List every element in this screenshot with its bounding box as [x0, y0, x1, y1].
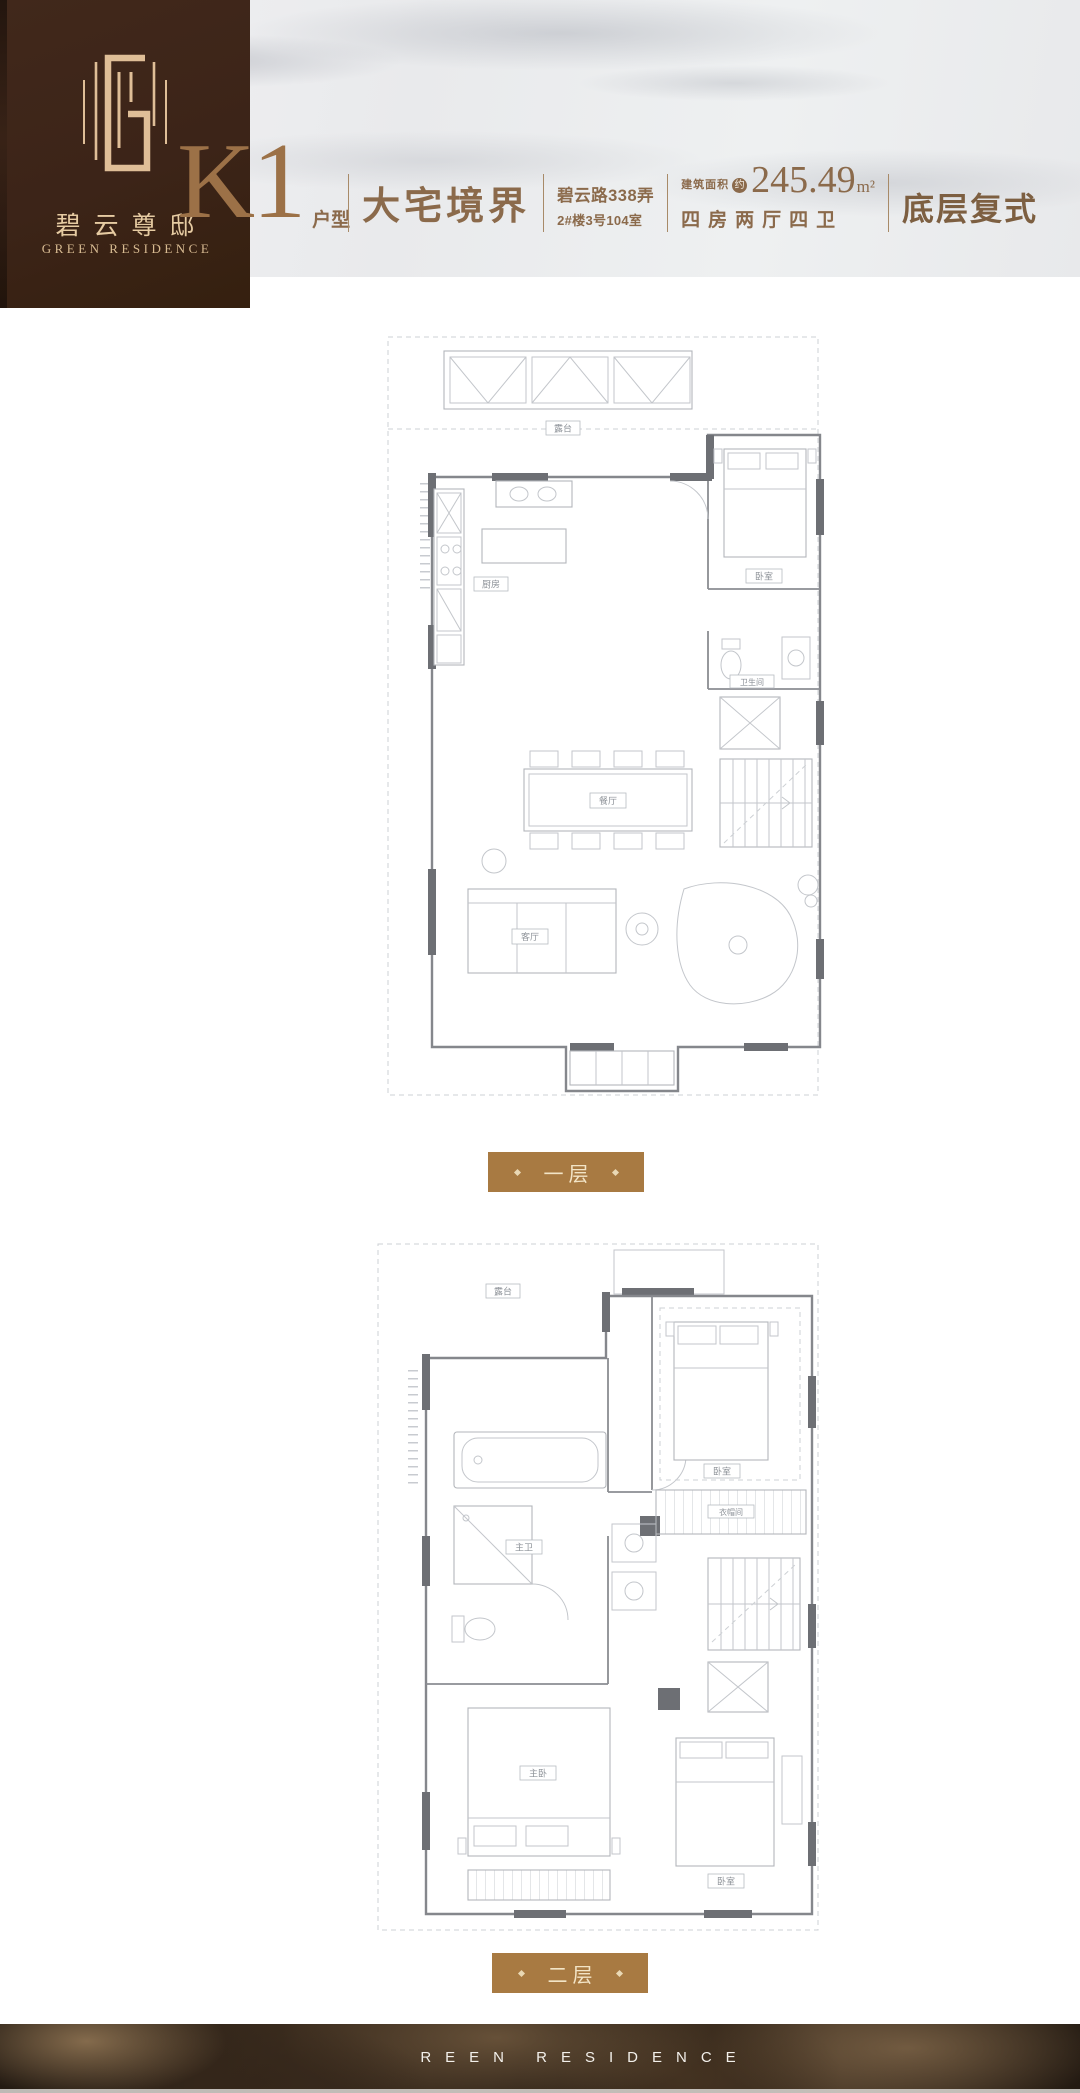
svg-text:卧室: 卧室	[755, 571, 773, 582]
badge-dot	[513, 1168, 520, 1175]
floor-2-plan: 露台	[368, 1240, 828, 1935]
floor-2-badge: 二层	[492, 1953, 648, 1993]
plan2-master-bath: 主卫	[452, 1432, 656, 1642]
svg-text:卧室: 卧室	[713, 1466, 731, 1477]
address-line2: 2#楼3号104室	[557, 210, 654, 229]
brand-monogram-icon	[75, 38, 175, 188]
plan1-dining: 餐厅	[524, 751, 692, 849]
plan2-master-bedroom: 主卧	[458, 1708, 620, 1900]
unit-code: K1	[177, 131, 303, 234]
unit-type-label: 户型	[312, 210, 335, 234]
plan2-closet: 衣帽间	[656, 1490, 806, 1534]
plan1-elevator	[720, 697, 780, 749]
plan1-terrace-windows: 露台	[444, 351, 692, 435]
plan1-stairs	[720, 759, 812, 847]
approx-circle-icon: 约	[732, 178, 747, 193]
tagline: 大宅境界	[362, 175, 530, 234]
floor-1-badge: 一层	[488, 1152, 644, 1192]
svg-text:主卫: 主卫	[515, 1542, 533, 1553]
header-divider	[348, 174, 349, 232]
floor-1-badge-label: 一层	[539, 1158, 594, 1187]
floor-2-badge-label: 二层	[543, 1959, 598, 1988]
area-label: 建筑面积	[681, 176, 729, 197]
svg-text:卧室: 卧室	[717, 1876, 735, 1887]
footer-brand-text: REEN RESIDENCE	[420, 2049, 749, 2066]
svg-text:露台: 露台	[554, 423, 572, 434]
header-divider	[543, 174, 544, 232]
badge-dot	[615, 1969, 622, 1976]
rooms-layout: 四房两厅四卫	[681, 205, 875, 232]
footer-photo-band: REEN RESIDENCE	[0, 2024, 1080, 2093]
plan2-bedroom-bottom: 卧室	[676, 1738, 802, 1888]
svg-text:餐厅: 餐厅	[599, 795, 617, 806]
plan1-entry-steps	[570, 1051, 674, 1085]
svg-text:客厅: 客厅	[521, 931, 539, 942]
address-block: 碧云路338弄 2#楼3号104室	[557, 182, 654, 234]
area-value: 245.49	[751, 163, 856, 197]
area-unit: m²	[857, 178, 875, 197]
floor-1-plan: 露台	[378, 333, 828, 1103]
header-divider	[667, 174, 668, 232]
plan2-interior-walls	[426, 1296, 686, 1684]
plan2-stairs	[708, 1558, 800, 1650]
plan1-bedroom: 卧室	[714, 449, 816, 583]
svg-text:主卧: 主卧	[529, 1768, 547, 1779]
header-title-row: K1 户型 大宅境界 碧云路338弄 2#楼3号104室 建筑面积 约 245.…	[177, 94, 1038, 234]
flyer-page: 碧云尊邸 GREEN RESIDENCE K1 户型 大宅境界 碧云路338弄 …	[0, 0, 1080, 2093]
plan1-kitchen: 厨房	[434, 481, 572, 665]
plan2-bedroom-top: 卧室	[660, 1308, 800, 1480]
svg-text:衣帽间: 衣帽间	[719, 1507, 743, 1517]
plan1-bathroom: 卫生间	[721, 637, 810, 688]
address-line1: 碧云路338弄	[557, 182, 654, 206]
svg-text:卫生间: 卫生间	[740, 677, 764, 687]
brand-name-en: GREEN RESIDENCE	[0, 241, 250, 257]
badge-dot	[517, 1969, 524, 1976]
plan2-balcony: 露台	[486, 1250, 724, 1298]
plan2-elevator	[708, 1662, 768, 1712]
area-block: 建筑面积 约 245.49 m² 四房两厅四卫	[681, 163, 875, 234]
badge-dot	[611, 1168, 618, 1175]
plan1-living: 客厅	[468, 849, 818, 1004]
header-divider	[888, 174, 889, 232]
svg-text:厨房: 厨房	[482, 579, 500, 590]
svg-text:露台: 露台	[494, 1286, 512, 1297]
duplex-label: 底层复式	[902, 184, 1038, 234]
